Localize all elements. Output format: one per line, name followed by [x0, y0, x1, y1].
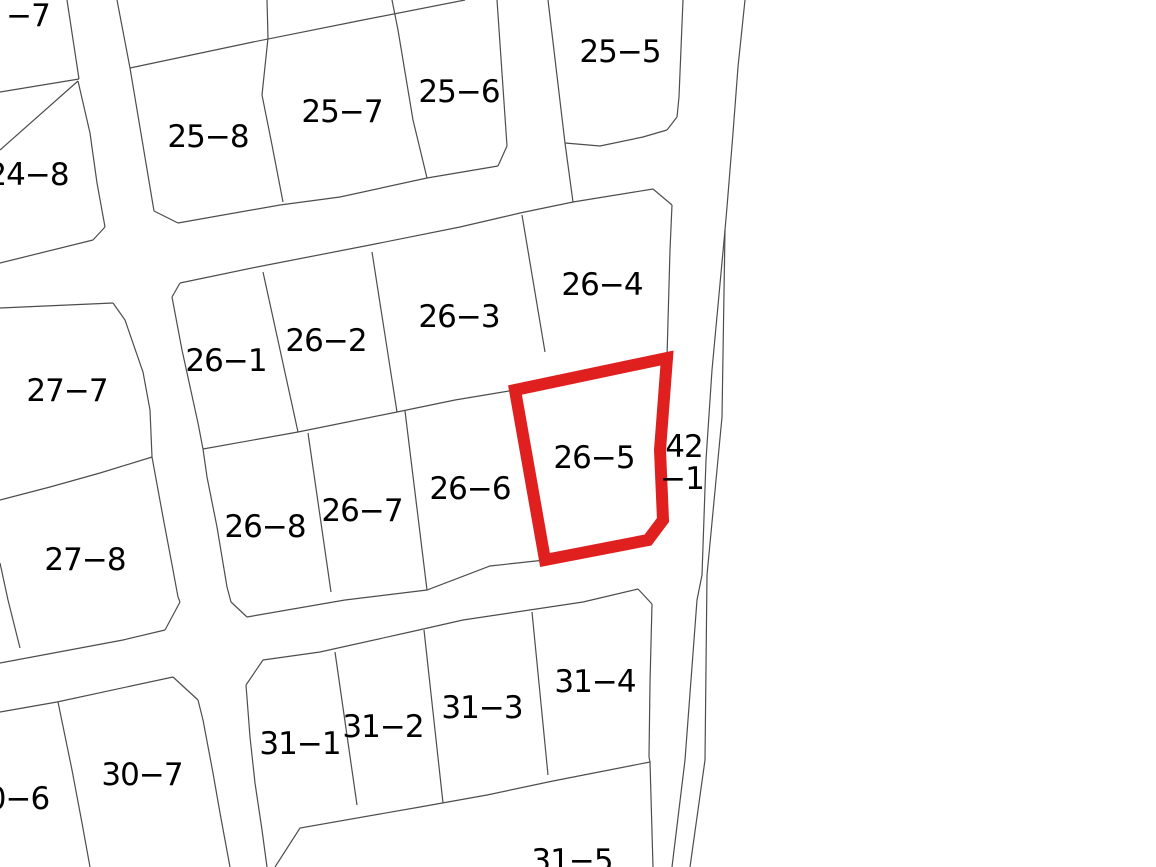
parcel-label: 30−7 — [101, 757, 182, 793]
parcel-label: 24−8 — [0, 157, 69, 193]
west-edge-boundary-stub — [0, 563, 20, 648]
parcel-label: 26−4 — [561, 267, 642, 303]
parcel-7-right-edge — [67, 0, 79, 79]
parcel-27-8-right-edge — [152, 457, 180, 602]
road-east-upper-line — [725, 0, 745, 230]
parcel-label: 31−4 — [554, 664, 635, 700]
parcel-label: 31−3 — [441, 690, 522, 726]
divider-31-3-31-4 — [532, 612, 548, 775]
block25-upper-row-boundary — [130, 0, 465, 68]
parcel-label: −7 — [6, 0, 50, 34]
road-east-east-branch — [690, 230, 725, 867]
parcel-24-8-bottom-edge — [0, 240, 93, 263]
block26-row-divider — [203, 390, 515, 449]
road-east-west-branch — [672, 230, 725, 867]
block31-top-edge — [263, 589, 638, 660]
parcel-30-7-corner-chamfer — [173, 677, 198, 700]
parcel-label: 27−7 — [26, 373, 107, 409]
parcel-label: 26−7 — [321, 493, 402, 529]
parcel-27-8-bottom-edge — [0, 630, 165, 663]
parcel-label: 26−1 — [185, 343, 266, 379]
parcel-26-4-corner-chamfer — [653, 189, 672, 205]
parcel-label: 26−8 — [224, 509, 305, 545]
parcel-label: 42 — [665, 429, 702, 465]
parcel-label: 25−5 — [579, 34, 660, 70]
divider-26-7-26-6 — [405, 411, 427, 590]
parcel-25-5-corner-chamfer — [667, 117, 677, 130]
parcel-31-5-right-edge — [650, 762, 653, 867]
parcel-25-6-corner-chamfer — [498, 146, 507, 166]
parcel-31-4-right-edge — [649, 604, 652, 762]
road-upper-north-edge — [178, 166, 498, 223]
parcel-26-4-right-edge — [667, 205, 672, 357]
parcel-label: 25−7 — [301, 94, 382, 130]
parcel-25-8-left-edge — [117, 0, 154, 211]
block31-topleft-chamfer — [246, 660, 263, 685]
block26-topleft-chamfer — [172, 283, 180, 297]
parcel-25-5-bottom-edge — [565, 130, 667, 146]
parcel-31-4-corner-chamfer — [638, 589, 652, 604]
parcel-label: 31−5 — [531, 843, 612, 867]
parcel-25-8-corner-chamfer — [154, 211, 178, 223]
parcel-label: 25−8 — [167, 119, 248, 155]
block30-top-edge — [0, 677, 173, 712]
cadastral-map-view: −724−825−825−725−625−526−126−226−326−426… — [0, 0, 1156, 867]
divider-26-3-26-4 — [522, 215, 545, 352]
parcel-label: 27−8 — [44, 542, 125, 578]
parcel-30-7-right-edge — [198, 700, 230, 867]
divider-25-8-25-7 — [262, 0, 283, 202]
divider-31-2-31-3 — [424, 630, 443, 803]
parcel-label: −1 — [660, 461, 704, 497]
parcel-27-7-right-edge — [125, 320, 152, 457]
parcel-25-5-left-edge — [548, 0, 565, 143]
divider-27-7-27-8 — [0, 457, 152, 500]
parcel-label: 0−6 — [0, 781, 49, 817]
parcel-label: 31−2 — [342, 709, 423, 745]
parcel-24-8-corner-chamfer — [93, 227, 105, 240]
block26-bottom-edge — [247, 560, 545, 617]
parcel-24-8-right-edge — [78, 81, 105, 227]
parcel-label: 26−5 — [553, 440, 634, 476]
parcel-map-canvas: −724−825−825−725−625−526−126−226−326−426… — [0, 0, 1156, 867]
divider-26-2-26-3 — [372, 252, 397, 412]
parcel-number-labels: −724−825−825−725−625−526−126−226−326−426… — [0, 0, 704, 867]
block27-corner-chamfer — [113, 303, 125, 320]
block31-left-edge — [246, 685, 267, 867]
parcel-label: 26−3 — [418, 299, 499, 335]
parcel-25-5-right-edge — [677, 0, 683, 117]
parcel-label: 31−1 — [259, 726, 340, 762]
parcel-24-8-top-edge — [0, 81, 78, 150]
parcel-25-5-west-connector — [565, 143, 573, 202]
parcel-label: 25−6 — [418, 74, 499, 110]
parcel-label: 26−6 — [429, 471, 510, 507]
block26-botleft-chamfer — [231, 602, 247, 617]
block27-top-edge — [0, 303, 113, 308]
parcel-27-8-corner-chamfer — [165, 602, 180, 630]
parcel-25-6-right-edge — [497, 0, 507, 146]
divider-30-6-30-7 — [58, 702, 90, 867]
parcel-label: 26−2 — [285, 323, 366, 359]
